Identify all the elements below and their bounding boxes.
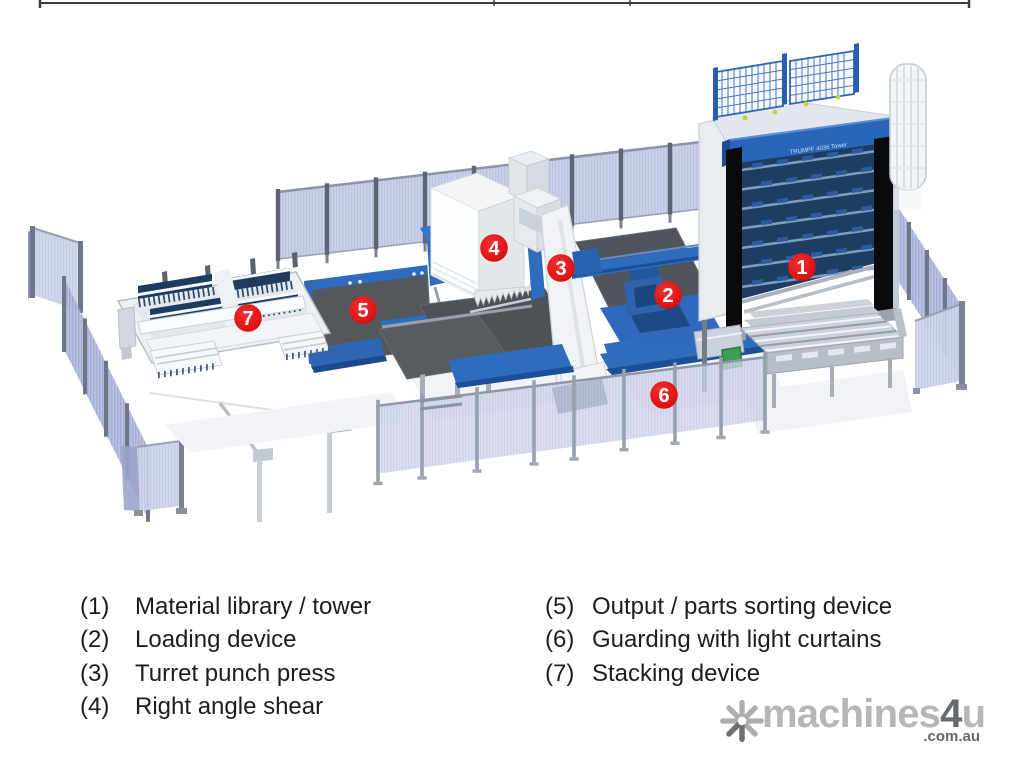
svg-text:1: 1 [796,257,807,279]
svg-text:6: 6 [658,385,669,407]
svg-text:2: 2 [662,285,673,307]
svg-text:3: 3 [555,258,566,280]
svg-text:7: 7 [242,308,253,330]
svg-text:4: 4 [488,238,500,260]
svg-text:5: 5 [357,300,368,322]
